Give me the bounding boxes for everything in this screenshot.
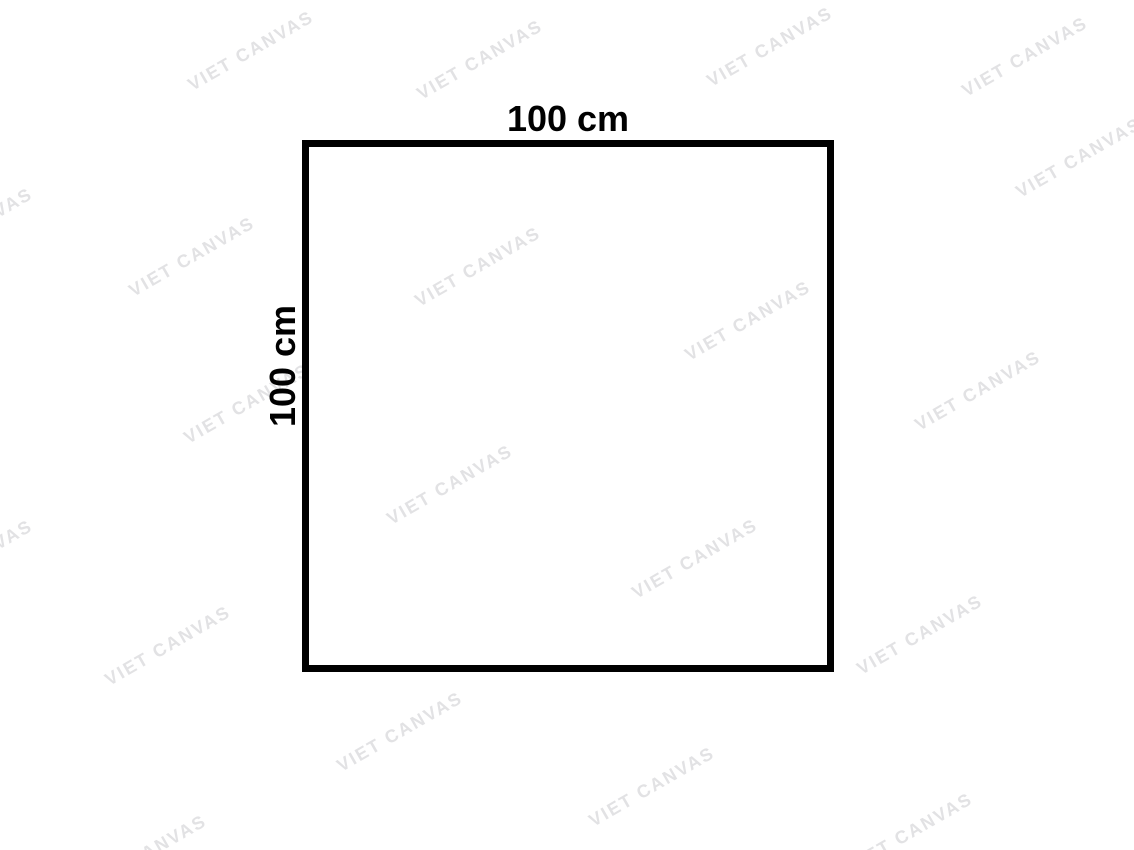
- watermark-text: VIET CANVAS: [333, 687, 466, 776]
- watermark-text: VIET CANVAS: [0, 183, 37, 272]
- square-outline: [302, 140, 834, 672]
- watermark-text: VIET CANVAS: [101, 601, 234, 690]
- watermark-text: VIET CANVAS: [958, 12, 1091, 101]
- watermark-text: VIET CANVAS: [585, 742, 718, 831]
- watermark-text: VIET CANVAS: [911, 346, 1044, 435]
- watermark-text: VIET CANVAS: [1012, 113, 1134, 202]
- watermark-text: VIET CANVAS: [413, 15, 546, 104]
- top-dimension-label: 100 cm: [302, 101, 834, 137]
- watermark-text: VIET CANVAS: [77, 810, 210, 850]
- watermark-text: VIET CANVAS: [184, 6, 317, 95]
- watermark-text: VIET CANVAS: [853, 590, 986, 679]
- watermark-text: VIET CANVAS: [125, 212, 258, 301]
- diagram-canvas: VIET CANVASVIET CANVASVIET CANVASVIET CA…: [0, 0, 1134, 850]
- watermark-text: VIET CANVAS: [0, 515, 37, 604]
- watermark-text: VIET CANVAS: [843, 788, 976, 850]
- left-dimension-label: 100 cm: [265, 305, 301, 427]
- watermark-text: VIET CANVAS: [703, 2, 836, 91]
